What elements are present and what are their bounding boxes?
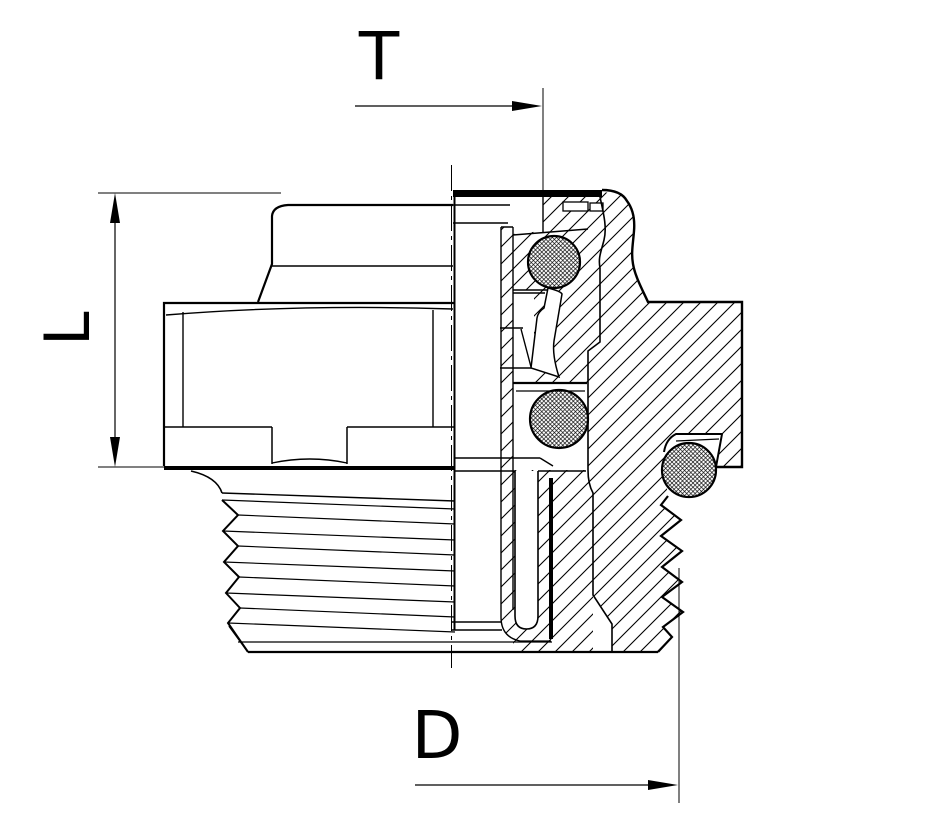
dimension-L-label: L [31, 311, 104, 346]
sleeve-top-face [453, 190, 602, 197]
annular-slot [515, 471, 538, 629]
cap-window [563, 202, 588, 211]
technical-drawing-canvas: T L D [0, 0, 934, 837]
o-ring-middle [530, 390, 588, 448]
background [0, 0, 934, 837]
dimension-T-label: T [358, 18, 400, 95]
fitting-section-drawing: T L D [0, 0, 934, 837]
o-ring-bottom-seal [662, 443, 716, 497]
o-ring-top [528, 236, 580, 288]
dimension-D-label: D [412, 697, 463, 774]
